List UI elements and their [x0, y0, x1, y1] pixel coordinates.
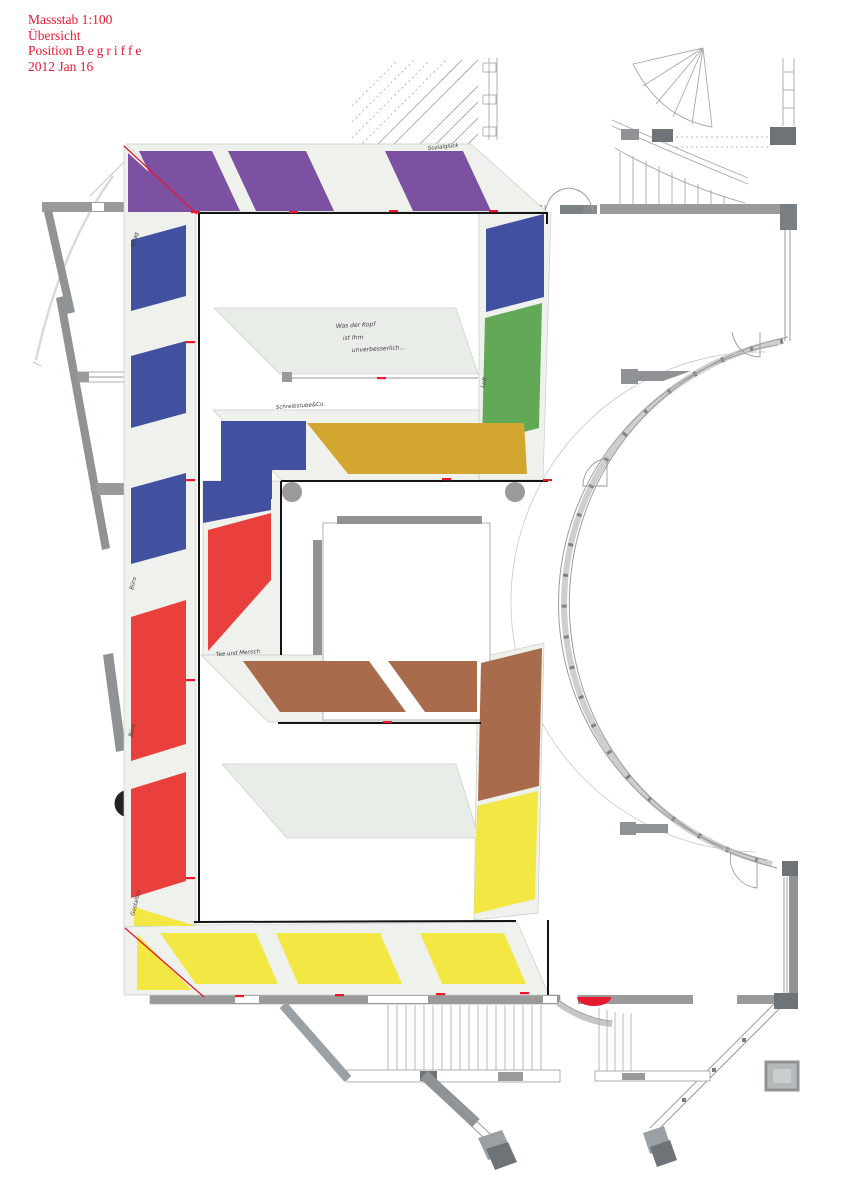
- top-center-walls-part: [583, 205, 597, 214]
- title-position-part: Begriffe: [76, 43, 145, 58]
- bottom-right-walls-part: [712, 1068, 716, 1072]
- bottom-right-walls: [558, 861, 798, 1167]
- left-walls-part: [97, 483, 127, 495]
- bottom-right-walls-part: [599, 1008, 631, 1071]
- top-center-ramp-part: [352, 60, 446, 154]
- red-dimension-mark: [543, 479, 552, 481]
- arc-furniture: [620, 369, 691, 835]
- top-center-ramp-part: [352, 60, 414, 122]
- top-right-walls-part: [621, 129, 639, 140]
- floor-plan-drawing: Was der Kopf ist Ihm unverbesserlich... …: [0, 0, 842, 1191]
- panel-yellow-2: [276, 933, 402, 984]
- top-center-ramp-part: [483, 95, 496, 104]
- right-facade-arc-part: [564, 341, 783, 864]
- bottom-center-stairs-part: [498, 1072, 523, 1081]
- arc-furniture-part: [636, 824, 668, 833]
- top-right-walls: [600, 127, 797, 341]
- arc-furniture-part: [621, 369, 638, 384]
- left-walls-part: [103, 653, 126, 752]
- bottom-right-walls-part: [774, 993, 798, 1009]
- bottom-center-stairs-part: [283, 1005, 348, 1079]
- right-facade-arc-part: [559, 345, 778, 860]
- right-facade-arc: [511, 332, 788, 888]
- red-dimension-mark: [436, 993, 445, 995]
- top-right-walls-part: [600, 204, 780, 214]
- red-dimension-mark: [377, 377, 386, 379]
- panel-right-yellow: [474, 791, 538, 914]
- bottom-center-stairs-part: [543, 996, 557, 1003]
- platform-block: [282, 372, 292, 382]
- top-right-stair-part: [612, 120, 748, 178]
- bottom-right-walls-part: [782, 861, 798, 876]
- panel-blue-2: [131, 341, 186, 428]
- top-center-ramp-part: [352, 60, 430, 138]
- title-view: Übersicht: [28, 28, 144, 44]
- red-dimension-mark: [186, 341, 195, 343]
- title-position-part: Position: [28, 43, 72, 58]
- bottom-right-walls-part: [622, 1073, 645, 1080]
- arc-door-icons: [583, 332, 760, 888]
- top-right-walls-part: [652, 129, 673, 142]
- bottom-center-stairs-part: [347, 1070, 560, 1082]
- left-walls-part: [92, 203, 104, 211]
- label-gold-bar: Schreibstube&Co.: [276, 402, 326, 411]
- bottom-right-walls-part: [595, 1071, 710, 1081]
- panel-blue-1: [131, 225, 186, 311]
- left-walls-part: [56, 296, 110, 550]
- top-right-stair: [612, 48, 794, 205]
- red-dimension-mark: [442, 478, 451, 480]
- red-dimension-mark: [289, 211, 298, 213]
- red-dimension-mark: [186, 479, 195, 481]
- title-scale: Massstab 1:100: [28, 12, 144, 28]
- red-dimension-mark: [335, 994, 344, 996]
- panel-red-1: [131, 600, 186, 761]
- bottom-right-walls-part: [742, 1038, 746, 1042]
- top-center-ramp-part: [483, 127, 496, 136]
- platform-note-line2: ist Ihm: [343, 334, 364, 342]
- column-dot: [505, 482, 525, 502]
- right-facade-arc-part: [569, 337, 788, 868]
- title-block: Massstab 1:100ÜbersichtPosition Begriffe…: [28, 12, 144, 74]
- column-dot: [282, 482, 302, 502]
- right-facade-arc-part: [511, 352, 766, 852]
- red-dimension-mark: [186, 877, 195, 879]
- panel-blue-3: [131, 473, 186, 564]
- right-facade-arc-part: [564, 341, 783, 864]
- red-dimension-mark: [520, 992, 529, 994]
- top-center-ramp-part: [483, 63, 496, 72]
- top-right-stair-part: [615, 148, 745, 203]
- left-walls-part: [33, 362, 41, 366]
- top-right-stair-part: [633, 64, 712, 127]
- bottom-right-walls-part: [789, 862, 798, 1009]
- panel-right-brown: [478, 648, 542, 801]
- contour-lines-part: [194, 921, 516, 922]
- top-right-stair-part: [643, 48, 703, 86]
- red-dimension-mark: [389, 210, 398, 212]
- top-right-stair-part: [673, 48, 703, 117]
- left-walls-part: [90, 158, 128, 196]
- panel-right-green: [482, 303, 542, 443]
- red-dimension-mark: [383, 721, 392, 723]
- red-dimension-mark: [235, 995, 244, 997]
- left-walls: [33, 158, 128, 817]
- bottom-center-stairs-part: [368, 996, 428, 1003]
- red-dimension-mark: [186, 679, 195, 681]
- title-position: Position Begriffe: [28, 43, 144, 59]
- panel-right-blue: [486, 214, 544, 312]
- red-half-disc: [577, 997, 611, 1006]
- bottom-right-walls-part: [650, 1004, 774, 1128]
- left-walls-part: [77, 372, 89, 382]
- bottom-right-walls-part: [558, 1003, 612, 1024]
- red-dimension-mark: [191, 211, 200, 213]
- architectural-sheet: { "title_block": { "scale": "Massstab 1:…: [0, 0, 842, 1191]
- top-right-stair-part: [633, 48, 703, 64]
- platform-lower: [222, 764, 479, 838]
- title-date: 2012 Jan 16: [28, 59, 144, 75]
- red-dimension-mark: [489, 210, 498, 212]
- room-wall-top: [337, 516, 482, 524]
- top-right-stair-part: [703, 48, 712, 127]
- bottom-center-stairs-part: [388, 1005, 541, 1071]
- top-center-walls-part: [560, 205, 583, 214]
- panel-red-2: [131, 772, 186, 898]
- arc-furniture-part: [620, 822, 636, 835]
- left-walls-part: [42, 202, 127, 212]
- room-wall-left: [313, 540, 322, 655]
- bottom-right-walls-part: [737, 995, 780, 1004]
- bottom-right-walls-part: [682, 1098, 686, 1102]
- bottom-right-walls-part: [773, 1069, 791, 1083]
- columns: [282, 482, 525, 502]
- top-right-walls-part: [770, 127, 796, 145]
- top-right-walls-part: [780, 204, 797, 230]
- bottom-center-stairs-part: [150, 995, 560, 1004]
